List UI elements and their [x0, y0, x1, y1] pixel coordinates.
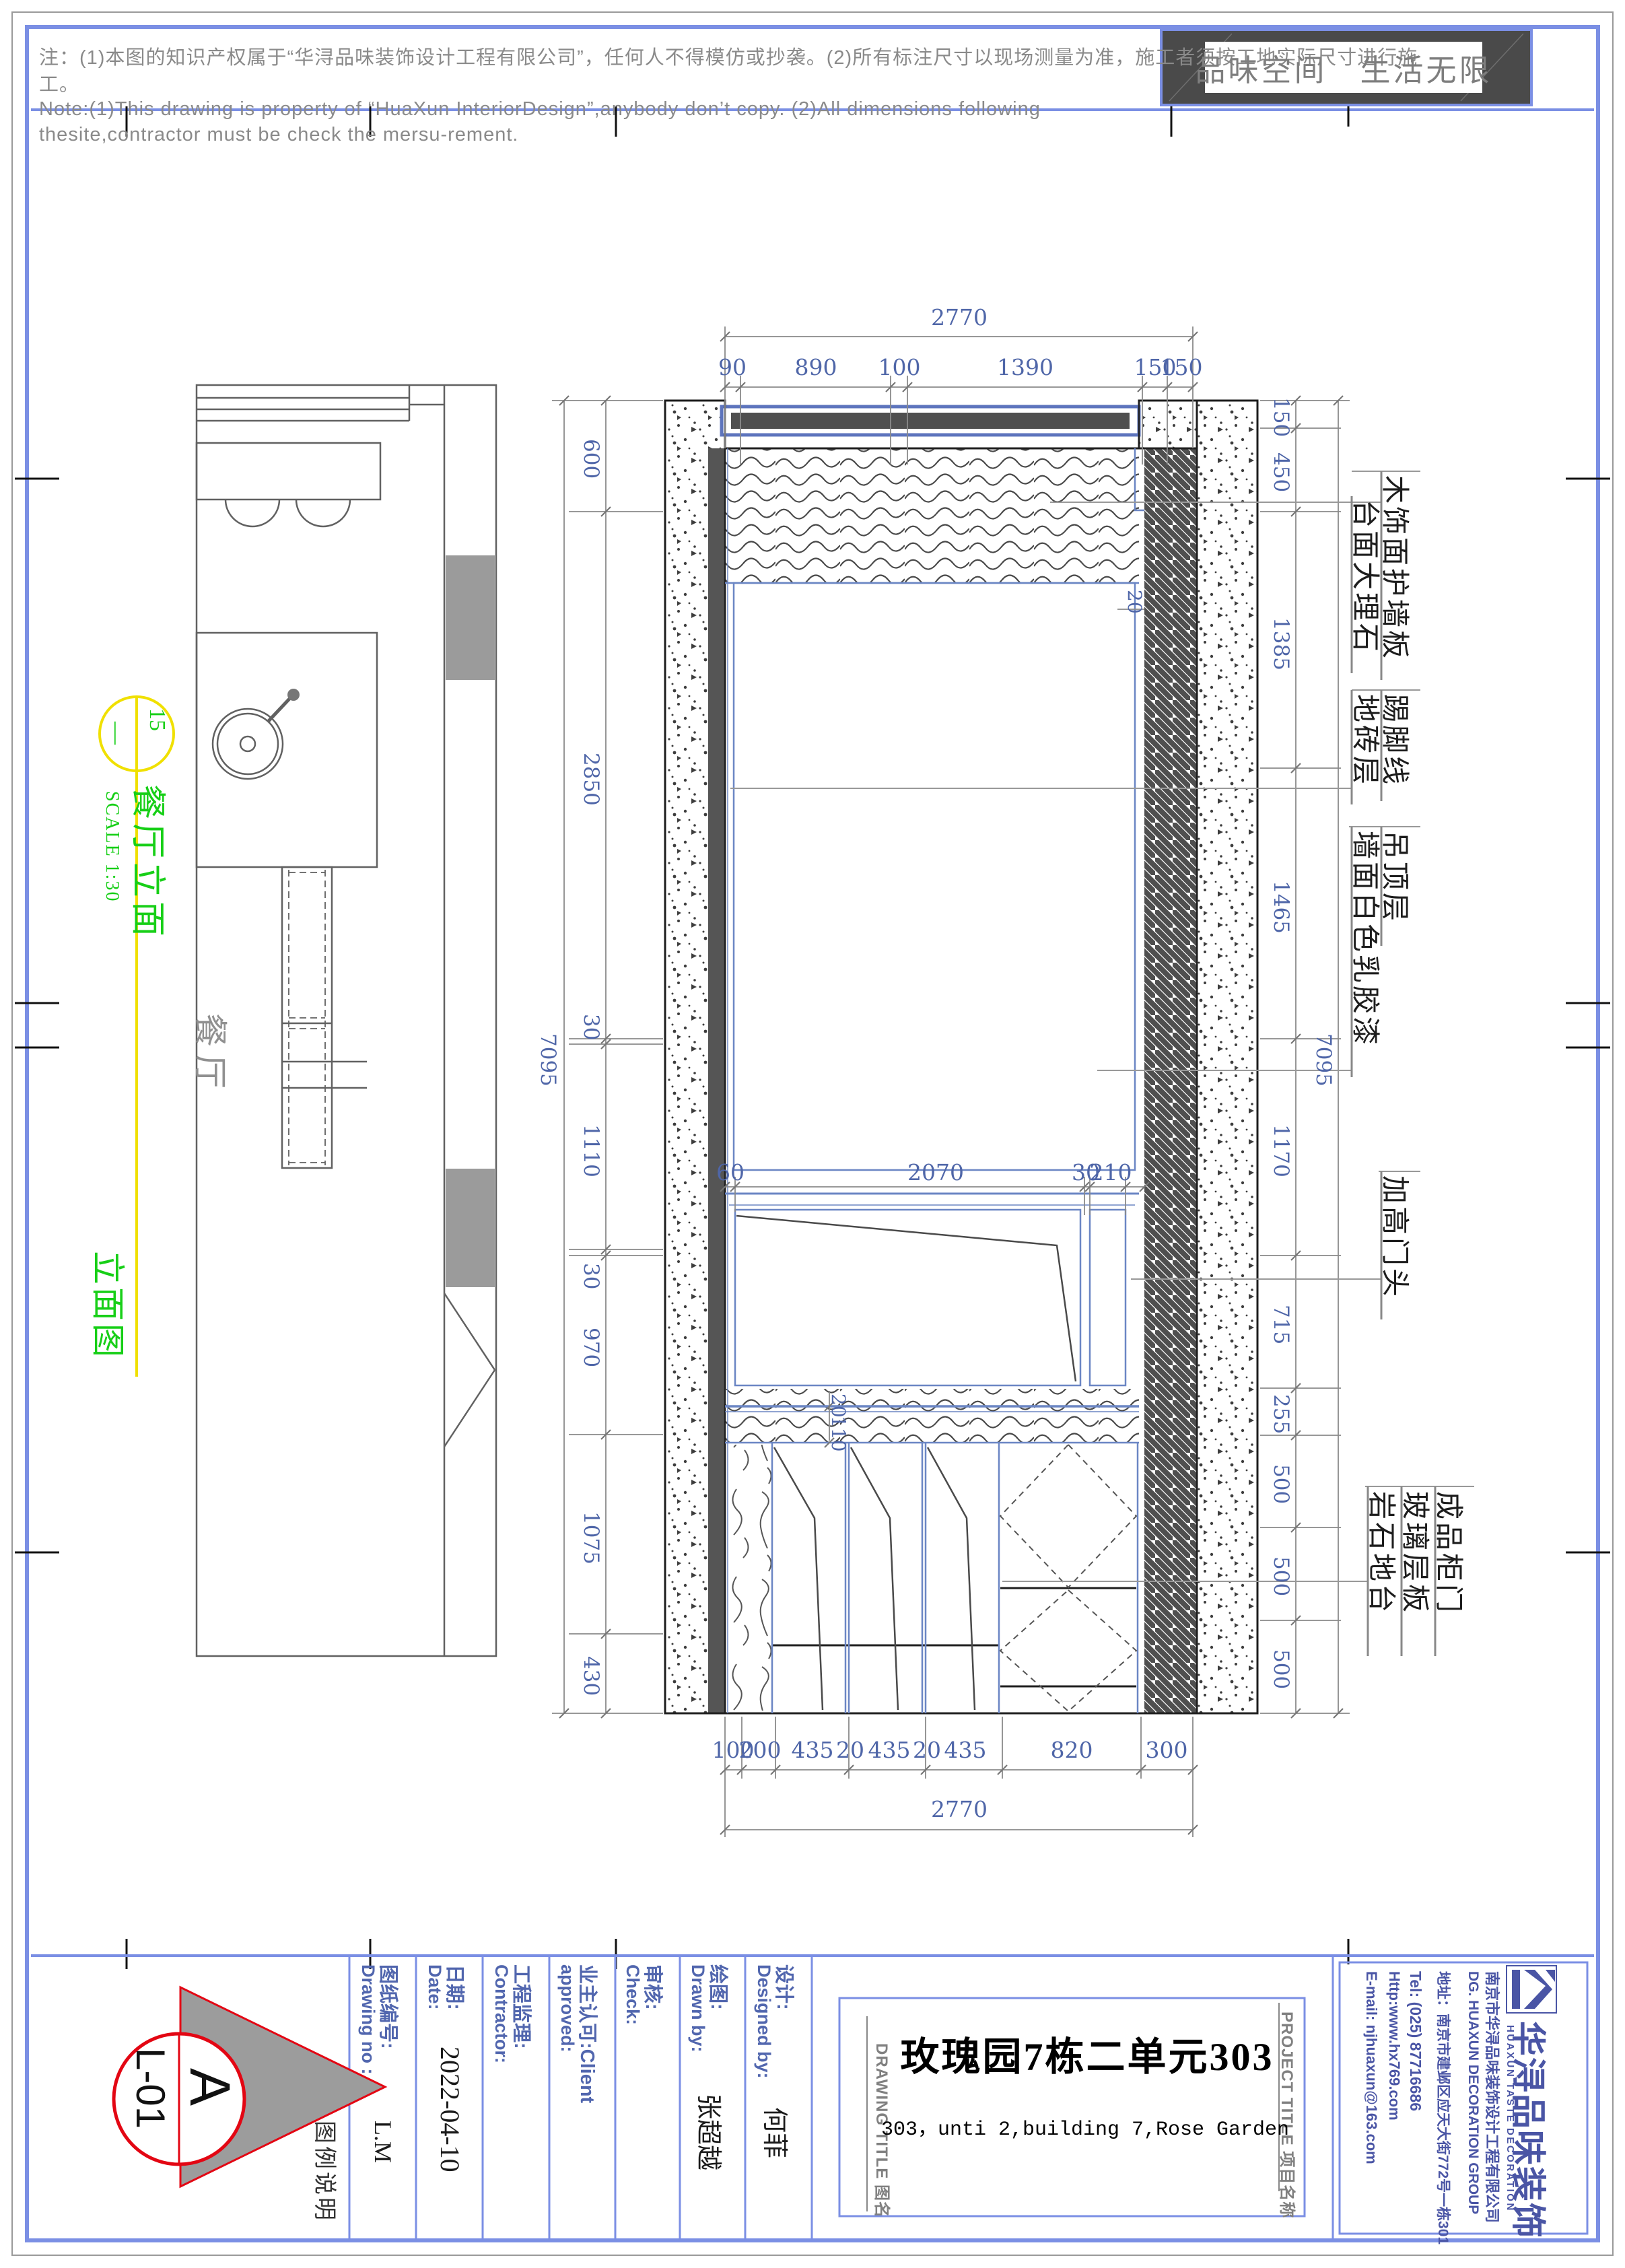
- dim-left-7: 430: [579, 1656, 603, 1696]
- dim-right-2: 1385: [1269, 617, 1293, 671]
- label-marble-countertop: 台面大理石: [1347, 500, 1388, 654]
- dim-right-3: 1465: [1269, 881, 1293, 934]
- dim-top-0: 90: [718, 354, 747, 380]
- dim-right-6: 255: [1269, 1394, 1293, 1434]
- field-contractor-cn: 工程监理:: [509, 1964, 537, 2049]
- note-line-2: 工。: [39, 69, 79, 97]
- company-logotype-en: HUAXUN TASTE DECORATION: [1505, 2025, 1516, 2212]
- dim-bottom-7: 820: [1051, 1737, 1093, 1763]
- dim-mid-3: 210: [1090, 1159, 1132, 1185]
- dim-right-5: 715: [1269, 1305, 1293, 1344]
- dim-right-1: 450: [1269, 452, 1293, 492]
- dim-bottom-1: 200: [739, 1737, 782, 1763]
- field-drawingno-cn: 图纸编号:: [376, 1964, 404, 2049]
- drawing-geometry: [0, 0, 1625, 2268]
- dim-bottom-8: 300: [1146, 1737, 1188, 1763]
- plan-wall-block-1: [446, 555, 495, 680]
- dim-left-total: 7095: [536, 1033, 560, 1087]
- cad-blue-lines: [725, 448, 1144, 1713]
- dark-finish-strip: [708, 448, 725, 1713]
- field-contractor-en: Contractor:: [491, 1964, 512, 2063]
- door-swing-lines: [736, 1216, 1076, 1710]
- company-name-en: DG. HUAXUN DECORATION GROUP: [1465, 1971, 1481, 2214]
- marble-strip: [727, 1445, 771, 1711]
- dim-right-total: 7095: [1311, 1033, 1336, 1087]
- field-drawingno-en: Drawing no :: [357, 1964, 378, 2075]
- dim-bottom-total: 2770: [931, 1796, 988, 1822]
- field-check-en: Check:: [622, 1964, 643, 2025]
- company-address: 地址：南京市建邺区应天大街772号一栋301: [1434, 1971, 1454, 2244]
- dim-left-2: 30: [579, 1014, 603, 1040]
- label-stone-platform: 岩石地台: [1363, 1491, 1404, 1615]
- dim-left-1: 2850: [579, 753, 603, 806]
- field-designedby-value: 何菲: [759, 2107, 796, 2158]
- wood-band-mid: [725, 1389, 1139, 1443]
- concrete-notch: [1139, 401, 1197, 448]
- company-name: 南京市华浔品味装饰设计工程有限公司: [1482, 1971, 1504, 2223]
- dim-top-2: 100: [878, 354, 921, 380]
- dim-bottom-5: 20: [913, 1737, 941, 1763]
- sheet-series-letter: A: [177, 2068, 242, 2106]
- dim-top-total: 2770: [931, 304, 988, 331]
- field-date-value: 2022-04-10: [434, 2047, 466, 2172]
- field-drawnby-value: 张超越: [693, 2094, 730, 2170]
- room-label: 餐厅: [188, 1013, 237, 1097]
- dim-right-7: 500: [1269, 1464, 1293, 1504]
- dim-small-1: 20: [827, 1394, 850, 1418]
- marker-number: 15: [144, 708, 170, 731]
- field-client-cn: 业主认可:Client: [575, 1964, 603, 2103]
- legend-label: 图例说明: [310, 2121, 343, 2223]
- note-line-4: thesite,contractor must be check the mer…: [39, 124, 518, 146]
- dim-small-2: 110: [827, 1416, 850, 1451]
- project-title-en: 303，unti 2,building 7,Rose Garden: [881, 2111, 1289, 2141]
- dim-top-1: 890: [795, 354, 837, 380]
- marker-subtitle: 立面图: [86, 1251, 135, 1360]
- marker-dash: —: [104, 722, 129, 745]
- dim-bottom-2: 435: [792, 1737, 834, 1763]
- drawing-sheet: 注：(1)本图的知识产权属于“华浔品味装饰设计工程有限公司”，任何人不得模仿或抄…: [0, 0, 1625, 2268]
- sheet-number: L-01: [127, 2048, 174, 2129]
- dim-top-5: 150: [1161, 354, 1203, 380]
- field-designedby-cn: 设计:: [771, 1964, 800, 2010]
- label-white-latex-paint: 墙面白色乳胶漆: [1347, 831, 1388, 1047]
- wood-band-top: [725, 448, 1139, 583]
- company-email: E-mail: njhuaxun@163.com: [1362, 1971, 1380, 2164]
- company-web: Http:www.hx769.com: [1385, 1971, 1403, 2121]
- project-title-cn: 玫瑰园7栋二单元303: [900, 2025, 1274, 2082]
- dim-right-0: 150: [1269, 397, 1293, 437]
- field-client-en: approved:: [557, 1964, 578, 2053]
- field-drawnby-cn: 绘图:: [705, 1964, 734, 2010]
- field-check-cn: 审核:: [640, 1964, 668, 2010]
- dim-mid-0: 60: [716, 1159, 745, 1185]
- dim-bottom-3: 20: [836, 1737, 864, 1763]
- field-designedby-en: Designed by:: [753, 1964, 774, 2079]
- dim-right-4: 1170: [1269, 1124, 1293, 1177]
- dim-left-0: 600: [579, 439, 603, 479]
- field-date-cn: 日期:: [442, 1964, 471, 2010]
- dim-left-6: 1075: [579, 1511, 603, 1565]
- hatch-column: [1144, 448, 1197, 1713]
- label-raised-door-head: 加高门头: [1377, 1175, 1418, 1299]
- label-floor-tile: 地砖层: [1347, 694, 1388, 787]
- dim-left-4: 30: [579, 1263, 603, 1289]
- field-date-en: Date:: [424, 1964, 445, 2010]
- company-tel: Tel: (025) 87716686: [1406, 1971, 1424, 2111]
- dim-left-3: 1110: [579, 1124, 603, 1177]
- concrete-wall-right: [1197, 401, 1257, 1713]
- marker-title: 餐厅立面: [126, 784, 176, 940]
- dim-right-9: 500: [1269, 1649, 1293, 1689]
- curtain-box: [722, 407, 1139, 435]
- dim-left-5: 970: [579, 1328, 603, 1367]
- field-drawingno-value: L.M: [369, 2121, 397, 2163]
- marker-scale: SCALE 1:30: [101, 791, 123, 902]
- slogan-text: 品味空间 生活无限: [1205, 42, 1482, 93]
- note-line-3: Note:(1)This drawing is property of “Hua…: [39, 98, 1041, 121]
- dim-right-8: 500: [1269, 1556, 1293, 1596]
- dim-bottom-6: 435: [944, 1737, 987, 1763]
- plan-wall-block-2: [446, 1169, 495, 1287]
- company-logo-icon: [1507, 1966, 1556, 2013]
- glass-panel-diamonds: [1000, 1445, 1136, 1711]
- dim-mid-1: 2070: [907, 1159, 964, 1185]
- dim-small-0: 20: [1123, 590, 1146, 614]
- dim-top-3: 1390: [997, 354, 1053, 380]
- dim-bottom-4: 435: [868, 1737, 911, 1763]
- field-drawnby-en: Drawn by:: [687, 1964, 708, 2053]
